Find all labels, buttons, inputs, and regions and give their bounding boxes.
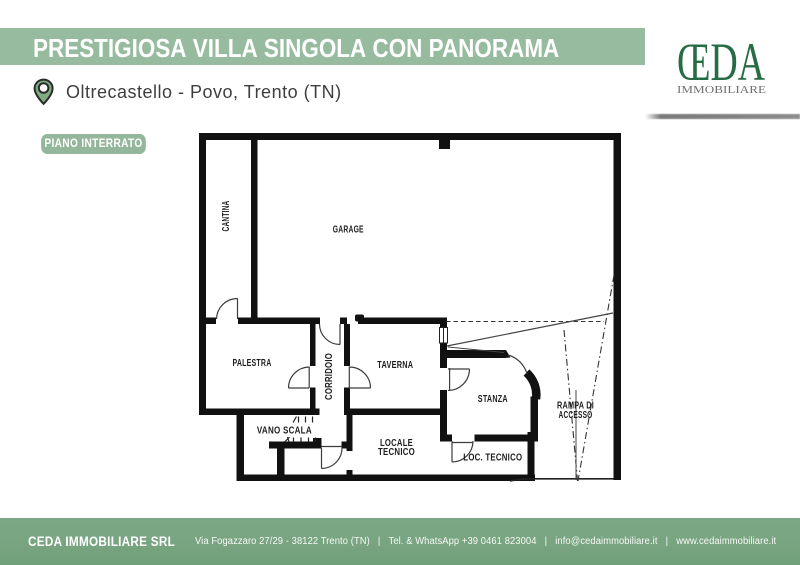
svg-text:GARAGE: GARAGE	[333, 225, 364, 236]
svg-text:CORRIDOIO: CORRIDOIO	[324, 353, 335, 400]
svg-text:STANZA: STANZA	[478, 394, 508, 405]
svg-text:CANTINA: CANTINA	[221, 201, 232, 232]
svg-text:TECNICO: TECNICO	[378, 447, 415, 458]
svg-text:VANO SCALA: VANO SCALA	[257, 425, 312, 436]
svg-text:TAVERNA: TAVERNA	[377, 360, 413, 371]
svg-text:ACCESSO: ACCESSO	[559, 410, 593, 421]
svg-text:PALESTRA: PALESTRA	[233, 358, 272, 369]
svg-text:LOC. TECNICO: LOC. TECNICO	[463, 453, 522, 464]
